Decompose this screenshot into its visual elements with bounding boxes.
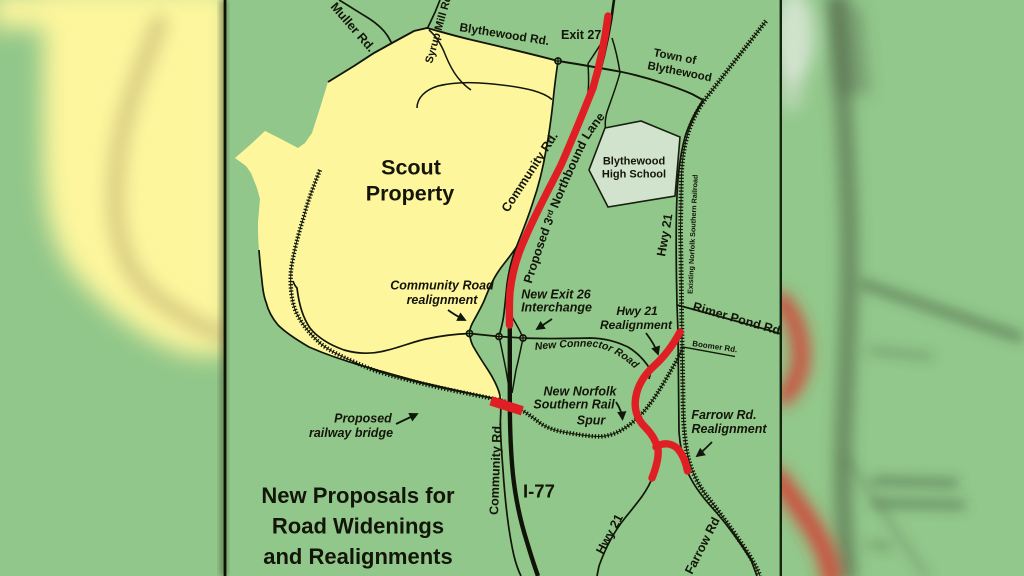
svg-text:Realignment: Realignment: [691, 422, 767, 436]
svg-text:Realignment: Realignment: [600, 318, 673, 332]
svg-text:Proposed: Proposed: [334, 412, 392, 426]
svg-text:Blythewood: Blythewood: [603, 156, 665, 168]
svg-text:I-77: I-77: [523, 481, 555, 502]
svg-text:railway bridge: railway bridge: [309, 426, 393, 440]
svg-text:Property: Property: [366, 182, 454, 206]
svg-text:Road Widenings: Road Widenings: [272, 514, 444, 539]
svg-text:Spur: Spur: [577, 414, 607, 428]
svg-text:and Realignments: and Realignments: [263, 544, 452, 569]
svg-text:Southern Rail: Southern Rail: [533, 398, 615, 412]
svg-text:Scout: Scout: [381, 156, 441, 180]
svg-text:Farrow Rd.: Farrow Rd.: [691, 408, 756, 422]
svg-text:Interchange: Interchange: [521, 301, 592, 315]
svg-text:realignment: realignment: [407, 293, 479, 307]
svg-text:Community Road: Community Road: [390, 279, 494, 293]
svg-text:Exit 27: Exit 27: [561, 28, 601, 42]
svg-text:High School: High School: [602, 169, 666, 181]
svg-text:Hwy 21: Hwy 21: [616, 304, 658, 318]
svg-text:New Exit 26: New Exit 26: [521, 288, 592, 302]
svg-text:New Norfolk: New Norfolk: [544, 385, 618, 399]
svg-text:New Proposals for: New Proposals for: [261, 483, 455, 508]
